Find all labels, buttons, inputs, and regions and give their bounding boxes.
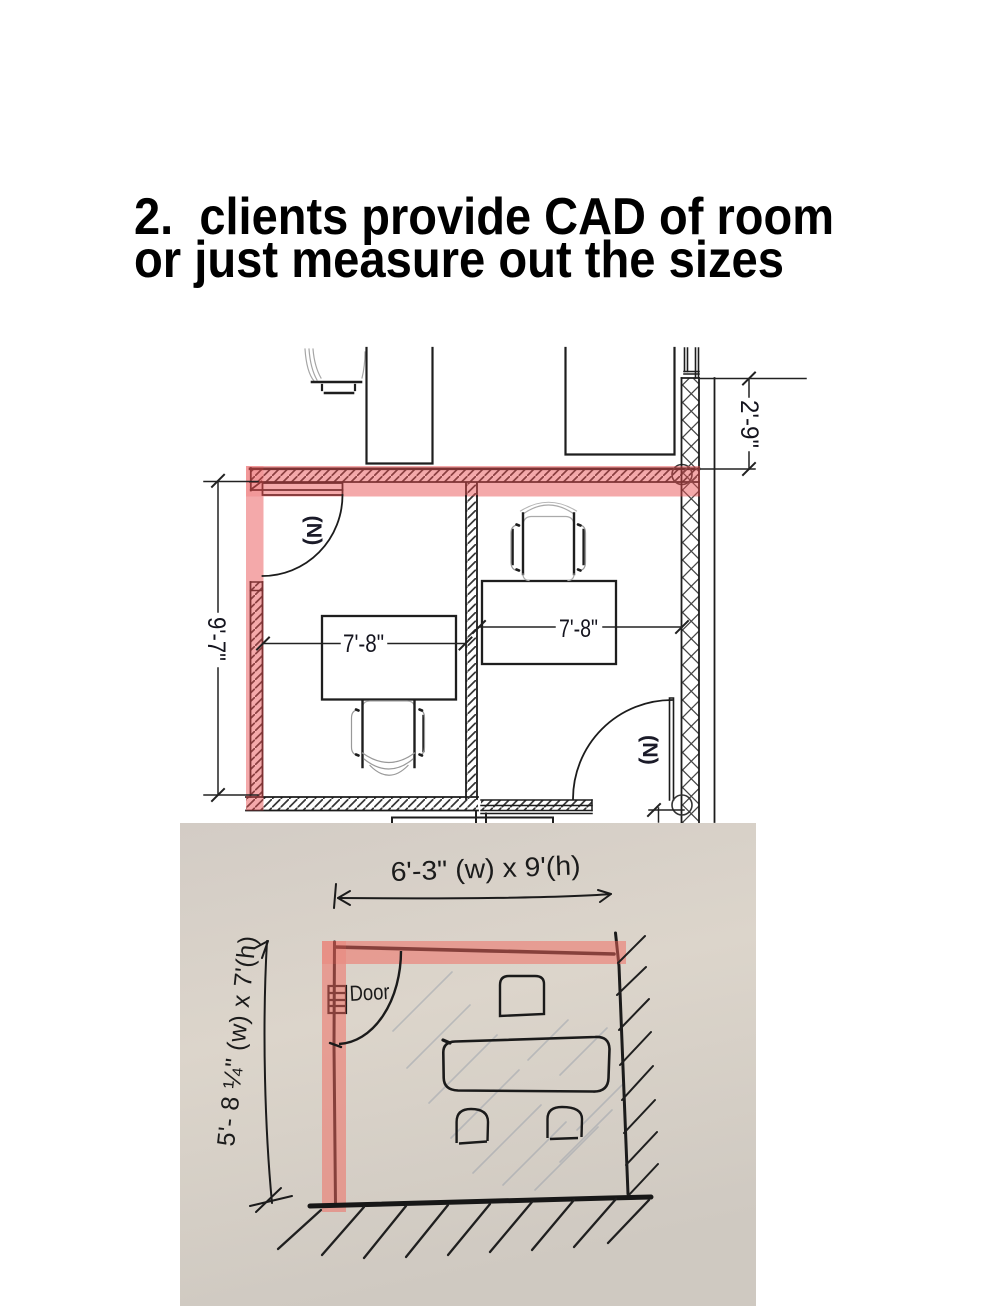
svg-text:Door: Door (349, 979, 390, 1006)
svg-text:9'-7": 9'-7" (202, 617, 230, 661)
svg-text:2'-9": 2'-9" (735, 400, 763, 448)
svg-text:(N): (N) (302, 516, 326, 546)
svg-text:7'-8": 7'-8" (343, 630, 384, 658)
svg-text:7'-8": 7'-8" (559, 615, 598, 643)
svg-text:or just measure out the sizes: or just measure out the sizes (134, 231, 784, 289)
svg-text:(N): (N) (638, 735, 662, 765)
